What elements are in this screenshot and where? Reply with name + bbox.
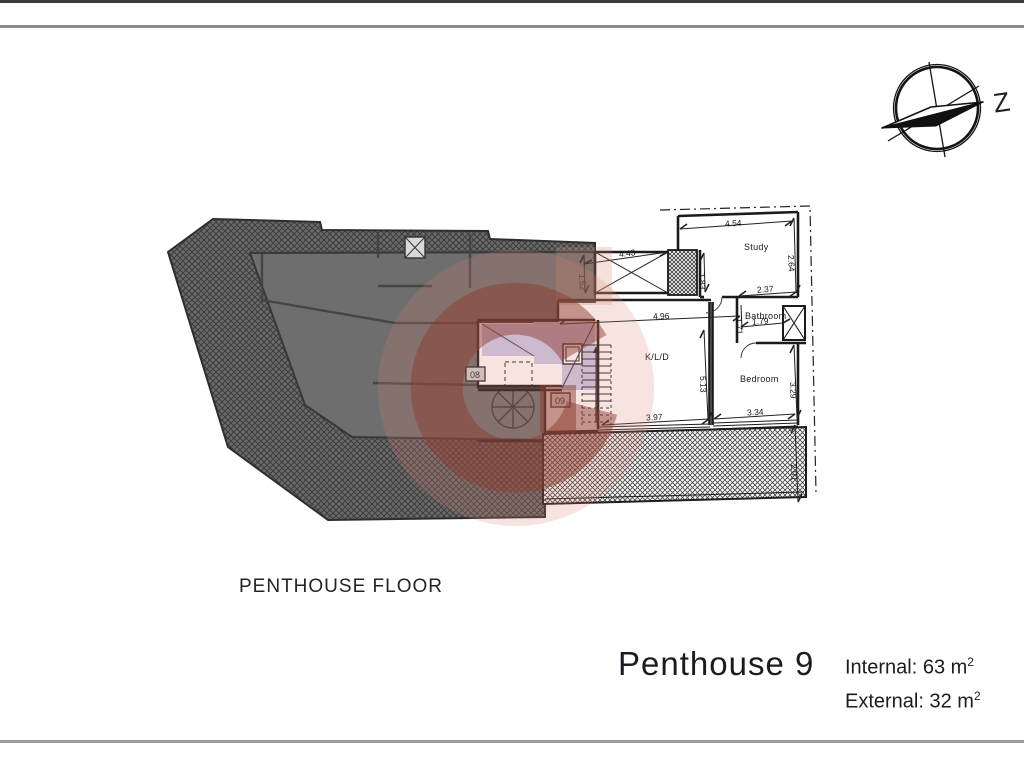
dim-void-w: 4.43 bbox=[618, 247, 636, 259]
dim-bath-h: 1.71 bbox=[734, 318, 745, 335]
top-window-edge bbox=[0, 0, 1024, 3]
room-label-bathroom: Bathroom bbox=[745, 311, 786, 321]
sheet-top-rule bbox=[0, 25, 1024, 28]
dim-shaft-h: 1.83 bbox=[697, 273, 708, 290]
dim-bath-top-w: 2.37 bbox=[757, 284, 774, 295]
north-letter: Z bbox=[991, 87, 1012, 119]
dim-kld-w: 4.96 bbox=[653, 311, 670, 322]
internal-area: Internal: 63 m2 bbox=[845, 648, 981, 682]
unit-title: Penthouse 9 bbox=[618, 645, 814, 683]
dim-bedroom-w: 3.34 bbox=[747, 407, 764, 418]
area-summary: Internal: 63 m2 External: 32 m2 bbox=[845, 648, 981, 715]
sheet-bottom-rule bbox=[0, 740, 1024, 743]
dim-bedroom-h: 3.29 bbox=[788, 382, 799, 399]
external-area: External: 32 m2 bbox=[845, 682, 981, 716]
dim-study-w: 4.54 bbox=[725, 218, 742, 229]
room-label-study: Study bbox=[744, 242, 769, 252]
dim-terrace-d: 2.01 bbox=[789, 464, 800, 481]
north-compass: Z bbox=[860, 45, 1020, 175]
external-area-sup: 2 bbox=[974, 689, 981, 703]
floor-label: PENTHOUSE FLOOR bbox=[239, 576, 443, 598]
room-label-bedroom: Bedroom bbox=[740, 374, 779, 384]
internal-area-sup: 2 bbox=[967, 655, 974, 669]
external-area-text: External: 32 m bbox=[845, 690, 974, 712]
bedroom-door-arc bbox=[741, 343, 756, 358]
dim-study-h: 2.64 bbox=[786, 255, 797, 272]
service-shaft bbox=[668, 250, 697, 295]
internal-area-text: Internal: 63 m bbox=[845, 657, 967, 679]
dim-kld-h: 5.13 bbox=[698, 376, 709, 393]
plan-sheet: Z bbox=[0, 0, 1024, 768]
floor-plan: 4.54 2.64 4.43 1.52 1.83 2.37 1.71 1.79 … bbox=[150, 190, 830, 535]
